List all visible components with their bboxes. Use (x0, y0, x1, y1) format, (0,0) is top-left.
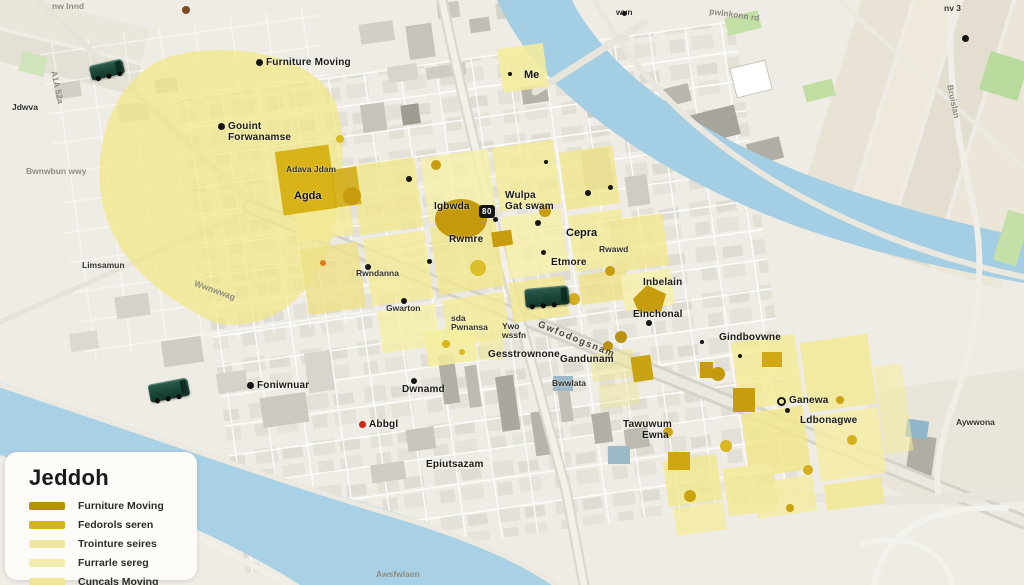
moving-truck-icon (524, 285, 569, 308)
legend-label: Trointure seires (78, 538, 157, 550)
poi-icon (785, 408, 790, 413)
poi-icon (585, 190, 591, 196)
poi-icon (508, 72, 512, 76)
pool-center-2 (553, 376, 573, 391)
poi-icon (182, 6, 190, 14)
poi-icon (622, 11, 627, 16)
poi-icon (493, 217, 498, 222)
legend-row: Furrarle sereg (29, 557, 197, 569)
zone-small-north (497, 43, 549, 93)
legend-swatch (29, 540, 65, 548)
poi-icon (962, 35, 969, 42)
poi-icon (427, 259, 432, 264)
poi-icon (608, 185, 613, 190)
legend-swatch (29, 578, 65, 585)
map-stage: Furniture MovingGouint ForwanamseBwnwbun… (0, 0, 1024, 585)
legend-label: Cuncals Moving (78, 576, 159, 585)
poi-icon (700, 340, 704, 344)
legend-label: Fedorols seren (78, 519, 153, 531)
legend-swatch (29, 502, 65, 510)
legend-label: Furniture Moving (78, 500, 164, 512)
legend-row: Cuncals Moving (29, 576, 197, 585)
poi-icon (406, 176, 412, 182)
poi-icon (401, 298, 407, 304)
poi-icon (646, 320, 652, 326)
legend-swatch (29, 521, 65, 529)
legend-row: Furniture Moving (29, 500, 197, 512)
legend-swatch (29, 559, 65, 567)
legend-row: Fedorols seren (29, 519, 197, 531)
pool-center (608, 446, 630, 464)
poi-icon (320, 260, 326, 266)
poi-icon (738, 354, 742, 358)
poi-icon (541, 250, 546, 255)
route-shield: 80 (479, 205, 495, 218)
legend-title: Jeddoh (29, 465, 197, 491)
legend-label: Furrarle sereg (78, 557, 149, 569)
legend-card: Jeddoh Furniture Moving Fedorols seren T… (5, 452, 197, 580)
legend-row: Trointure seires (29, 538, 197, 550)
poi-icon (365, 264, 371, 270)
poi-icon (535, 220, 541, 226)
poi-icon (411, 378, 417, 384)
poi-icon (544, 160, 548, 164)
